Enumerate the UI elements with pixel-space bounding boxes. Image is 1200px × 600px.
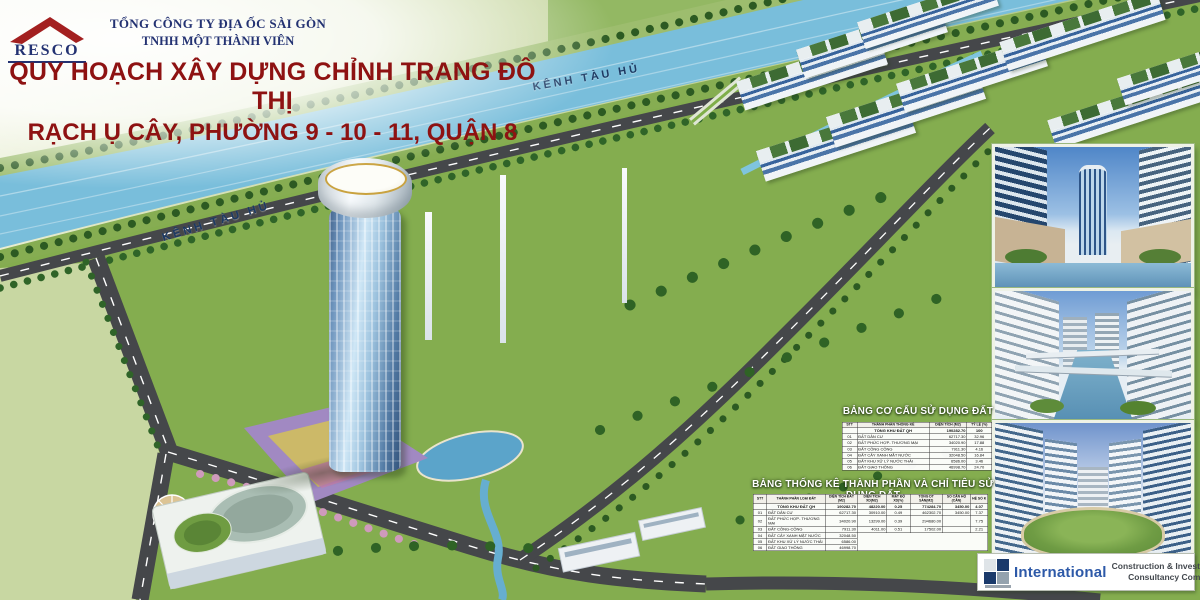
col-header: TỔNG DT SÀN(M2) [910,494,942,503]
table-header-row: STT THÀNH PHẦN LOẠI ĐẤT DIỆN TÍCH ĐẤT (M… [753,494,988,503]
icc-mark-icon [984,559,1009,585]
poster-title: QUY HOẠCH XÂY DỰNG CHỈNH TRANG ĐÔ THỊ RẠ… [0,58,545,147]
icc-mark-caption [985,585,1011,588]
col-header: THÀNH PHẦN LOẠI ĐẤT [767,494,826,503]
cell: 24.70 [967,464,992,470]
consultant-line2: Consultancy Company [1112,572,1200,583]
cell: 34020.90 [826,516,857,527]
cell: 294680.00 [910,516,942,527]
stats-table: STT THÀNH PHẦN LOẠI ĐẤT DIỆN TÍCH ĐẤT (M… [753,494,988,551]
table-row: 02 ĐẤT PHỨC HỢP- THƯƠNG MẠI 34020.90 132… [753,516,988,527]
cell: 0.39 [887,516,910,527]
landmark-tower-helipad [325,163,407,195]
col-header: STT [753,494,767,503]
perspective-view-1 [992,144,1194,290]
merged-empty-cell [857,533,988,551]
company-name-line1: TỔNG CÔNG TY ĐỊA ỐC SÀI GÒN [88,16,348,32]
consultant-line1: Construction & Investment [1112,561,1200,572]
cell: 06 [753,545,767,551]
cell: ĐẤT GIAO THÔNG [857,464,929,470]
table-row: 06 ĐẤT GIAO THÔNG 46998.70 24.70 [842,464,992,470]
perspective-view-3 [992,420,1194,568]
poster-title-line1: QUY HOẠCH XÂY DỰNG CHỈNH TRANG ĐÔ THỊ [0,58,545,116]
land-use-table-title: BẢNG CƠ CẤU SỬ DỤNG ĐẤT [838,406,998,417]
resco-logo: RESCO [8,14,86,63]
landmark-tower [316,158,414,480]
col-header: MẬT ĐỘ XD(%) [887,494,910,503]
table-row: 04 ĐẤT CÂY XANH MẶT NƯỚC 32048.50 [753,533,988,539]
masterplan-poster: KÊNH TÀU HỦ KÊNH TÀU HỦ RESCO TỔNG CÔNG … [0,0,1200,600]
thumb1-water [995,263,1191,287]
cell: ĐẤT PHỨC HỢP- THƯƠNG MẠI [767,516,826,527]
consultant-logo: International Construction & Investment … [977,553,1195,591]
cell: 46998.70 [826,545,857,551]
company-name-line2: TNHH MỘT THÀNH VIÊN [88,34,348,49]
cell [942,516,970,527]
landmark-tower-body [329,200,401,472]
cell: 02 [753,516,767,527]
col-header: SỐ CĂN HỘ (CĂN) [942,494,970,503]
poster-title-line2: RẠCH Ụ CÂY, PHƯỜNG 9 - 10 - 11, QUẬN 8 [0,119,545,147]
cell: 13299.00 [857,516,886,527]
cell: ĐẤT KHU XỬ LÝ NƯỚC THẢI [767,539,826,545]
thumb1-center-tower [1079,165,1107,255]
col-header: HỆ SỐ K [971,494,988,503]
consultant-description: Construction & Investment Consultancy Co… [1112,561,1200,583]
thumb2-left-bank [1030,399,1064,413]
thumb3-central-park [1021,507,1165,559]
thumb2-right-bank [1120,401,1156,415]
land-use-table: STT THÀNH PHẦN THỐNG KÊ DIỆN TÍCH (M2) T… [842,422,992,471]
cell: 7.75 [971,516,988,527]
col-header: DIỆN TÍCH XD(M2) [857,494,886,503]
company-name: TỔNG CÔNG TY ĐỊA ỐC SÀI GÒN TNHH MỘT THÀ… [88,16,348,49]
resco-roof-icon [8,14,86,44]
cell: ĐẤT CÂY XANH MẶT NƯỚC [767,533,826,539]
col-header: DIỆN TÍCH ĐẤT (M2) [826,494,857,503]
cell: 06 [842,464,857,470]
cell: ĐẤT GIAO THÔNG [767,545,826,551]
consultant-name: International [1014,564,1107,581]
cell: 46998.70 [929,464,967,470]
perspective-view-2 [992,288,1194,422]
